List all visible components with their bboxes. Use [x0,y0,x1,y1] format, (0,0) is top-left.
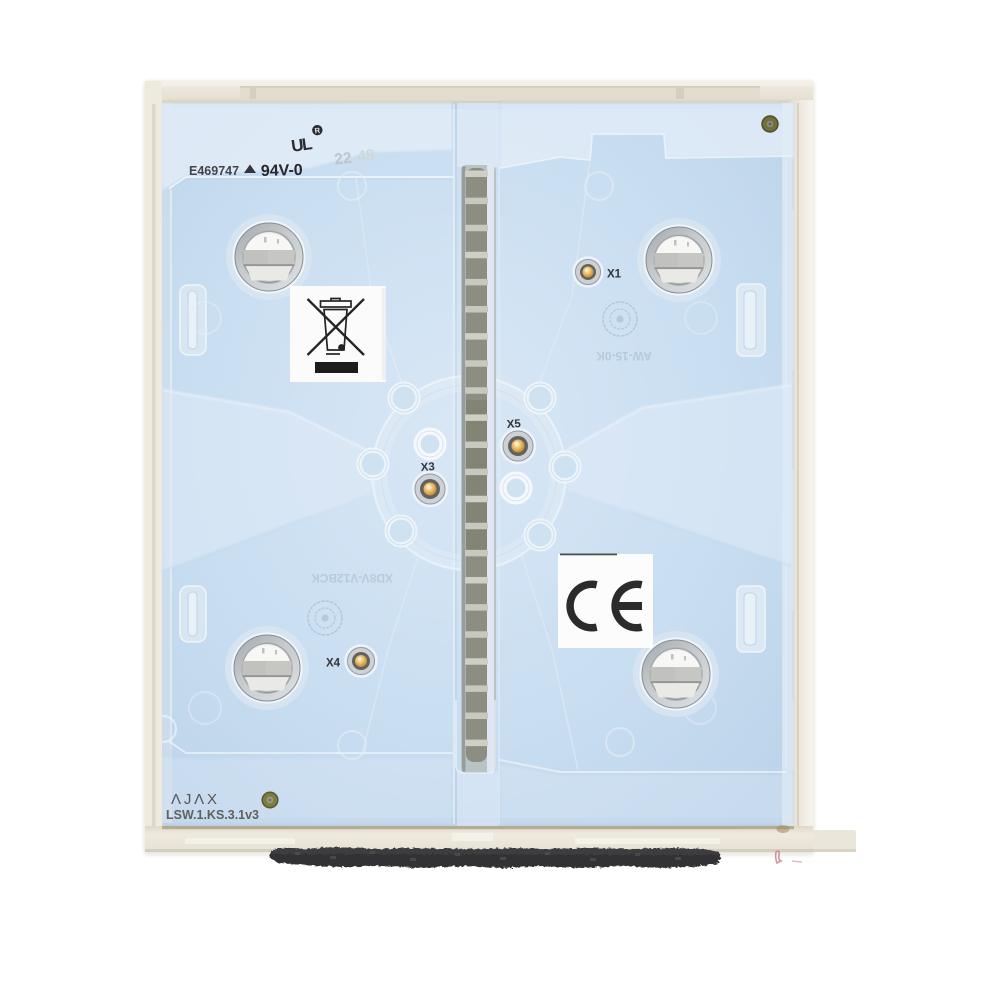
svg-text:22: 22 [333,150,352,169]
svg-text:X4: X4 [326,658,341,670]
svg-text:UL: UL [290,134,313,156]
svg-text:94V-0: 94V-0 [261,162,303,180]
svg-text:48: 48 [356,147,376,166]
svg-text:LSW.1.KS.3.1v3: LSW.1.KS.3.1v3 [166,807,259,822]
svg-text:ΛJΛX: ΛJΛX [171,791,218,808]
svg-text:AW-15-0K: AW-15-0K [596,349,652,363]
svg-text:E469747: E469747 [189,164,239,178]
svg-text:X3: X3 [420,461,435,474]
svg-text:X5: X5 [506,418,521,431]
svg-text:XD8V-V12BCK: XD8V-V12BCK [311,571,393,585]
svg-text:X1: X1 [607,269,622,281]
